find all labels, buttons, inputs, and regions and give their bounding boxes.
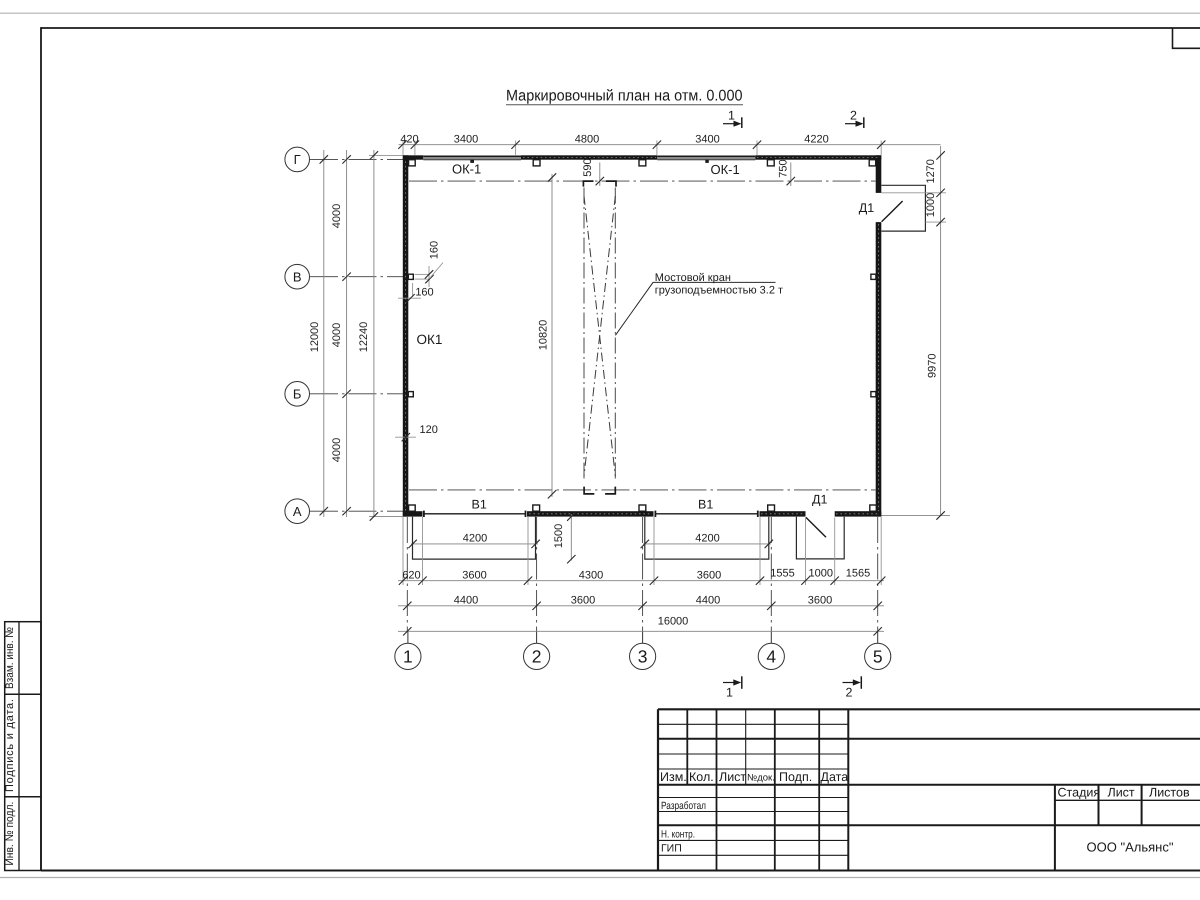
svg-text:2: 2 bbox=[532, 647, 542, 667]
svg-text:Подп.: Подп. bbox=[779, 770, 812, 784]
svg-text:№док.: №док. bbox=[747, 773, 775, 784]
svg-text:А: А bbox=[293, 504, 302, 519]
svg-text:ОК1: ОК1 bbox=[417, 332, 443, 347]
svg-text:4200: 4200 bbox=[695, 532, 719, 544]
svg-text:3600: 3600 bbox=[808, 594, 832, 606]
svg-text:10820: 10820 bbox=[538, 320, 550, 351]
svg-text:750: 750 bbox=[778, 159, 790, 177]
svg-text:120: 120 bbox=[420, 424, 438, 436]
svg-text:2: 2 bbox=[850, 109, 857, 123]
svg-text:грузоподъемностью 3.2 т: грузоподъемностью 3.2 т bbox=[655, 285, 783, 297]
svg-text:12240: 12240 bbox=[358, 322, 370, 353]
svg-text:Н. контр.: Н. контр. bbox=[661, 828, 695, 840]
svg-text:Д1: Д1 bbox=[812, 493, 827, 507]
svg-text:1000: 1000 bbox=[925, 193, 937, 217]
svg-text:Взам. инв. №: Взам. инв. № bbox=[4, 627, 16, 689]
svg-text:ОК-1: ОК-1 bbox=[452, 162, 481, 177]
svg-text:Инв. № подл.: Инв. № подл. bbox=[4, 802, 16, 866]
svg-text:Дата: Дата bbox=[821, 770, 849, 784]
svg-text:4000: 4000 bbox=[331, 438, 343, 462]
svg-text:4: 4 bbox=[766, 647, 776, 667]
svg-text:620: 620 bbox=[402, 569, 420, 581]
svg-text:ГИП: ГИП bbox=[661, 843, 682, 855]
svg-text:В: В bbox=[293, 269, 302, 284]
svg-text:4220: 4220 bbox=[804, 133, 828, 145]
svg-text:3400: 3400 bbox=[454, 133, 478, 145]
svg-text:Маркировочный план на отм. 0.0: Маркировочный план на отм. 0.000 bbox=[506, 88, 743, 105]
svg-text:Разработал: Разработал bbox=[661, 800, 706, 812]
svg-text:9970: 9970 bbox=[927, 353, 939, 377]
svg-text:Листов: Листов bbox=[1149, 786, 1190, 800]
svg-text:Б: Б bbox=[293, 386, 302, 401]
svg-text:3600: 3600 bbox=[462, 569, 486, 581]
svg-text:1500: 1500 bbox=[553, 524, 565, 548]
svg-text:Подпись и дата.: Подпись и дата. bbox=[4, 699, 16, 792]
svg-text:4000: 4000 bbox=[331, 323, 343, 347]
svg-text:1: 1 bbox=[726, 686, 733, 700]
svg-text:4000: 4000 bbox=[331, 204, 343, 228]
svg-text:4400: 4400 bbox=[454, 594, 478, 606]
svg-text:3600: 3600 bbox=[571, 594, 595, 606]
svg-text:4300: 4300 bbox=[579, 569, 603, 581]
svg-text:3400: 3400 bbox=[695, 133, 719, 145]
svg-text:Мостовой кран: Мостовой кран bbox=[655, 272, 731, 284]
svg-text:В1: В1 bbox=[698, 498, 713, 512]
svg-text:1000: 1000 bbox=[809, 568, 833, 580]
svg-text:4400: 4400 bbox=[696, 594, 720, 606]
svg-text:Стадия: Стадия bbox=[1058, 786, 1101, 800]
svg-text:3: 3 bbox=[638, 647, 648, 667]
svg-text:Изм.: Изм. bbox=[660, 770, 687, 784]
svg-text:4200: 4200 bbox=[463, 532, 487, 544]
svg-text:В1: В1 bbox=[472, 498, 487, 512]
svg-text:Д1: Д1 bbox=[859, 201, 874, 215]
svg-text:420: 420 bbox=[400, 133, 418, 145]
svg-text:160: 160 bbox=[415, 287, 433, 299]
svg-text:ООО "Альянс": ООО "Альянс" bbox=[1087, 840, 1174, 855]
svg-text:1555: 1555 bbox=[770, 568, 794, 580]
svg-text:1: 1 bbox=[403, 647, 413, 667]
svg-text:5: 5 bbox=[873, 647, 883, 667]
svg-text:12000: 12000 bbox=[309, 322, 321, 353]
svg-text:1: 1 bbox=[728, 109, 735, 123]
svg-text:Лист: Лист bbox=[719, 770, 746, 784]
svg-text:Кол.: Кол. bbox=[689, 770, 714, 784]
svg-text:160: 160 bbox=[429, 241, 441, 259]
svg-text:3600: 3600 bbox=[697, 569, 721, 581]
svg-text:4800: 4800 bbox=[575, 133, 599, 145]
svg-text:16000: 16000 bbox=[658, 616, 689, 628]
svg-text:Лист: Лист bbox=[1108, 786, 1135, 800]
svg-text:ОК-1: ОК-1 bbox=[711, 162, 740, 177]
svg-text:Г: Г bbox=[294, 152, 301, 167]
svg-text:590: 590 bbox=[582, 158, 594, 176]
svg-text:2: 2 bbox=[846, 686, 853, 700]
svg-text:1270: 1270 bbox=[925, 159, 937, 183]
svg-text:1565: 1565 bbox=[846, 568, 870, 580]
